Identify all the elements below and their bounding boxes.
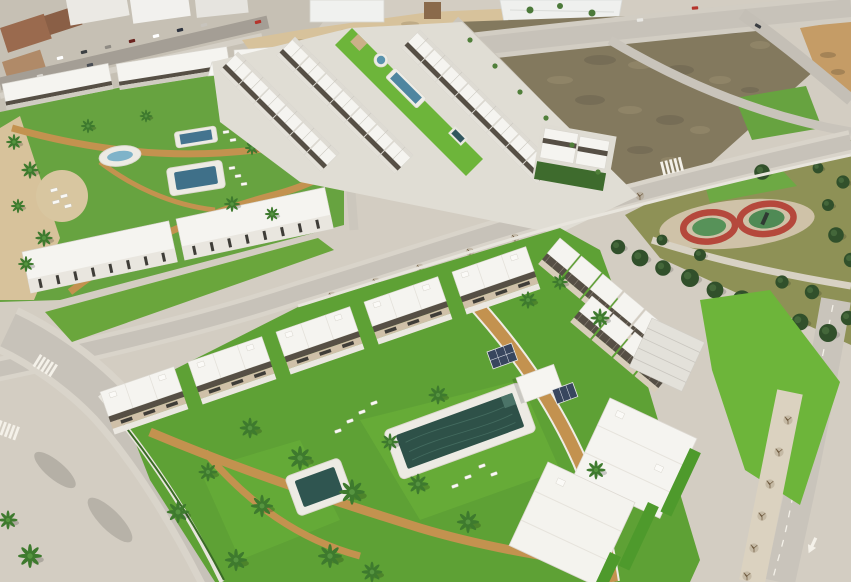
white-building <box>310 0 384 22</box>
round-fountain-pool <box>374 53 388 67</box>
street-sapling <box>569 142 574 147</box>
street-tree <box>589 10 596 17</box>
street-tree <box>527 7 534 14</box>
street-sapling <box>467 37 472 42</box>
sun-lounger <box>229 166 235 170</box>
aerial-render-canvas <box>0 0 851 582</box>
sun-lounger <box>223 130 229 134</box>
sidewalk-bare-tree <box>742 571 751 580</box>
street-tree <box>557 3 563 9</box>
street-sapling <box>517 89 522 94</box>
sidewalk-bare-tree <box>774 447 783 456</box>
sidewalk-bare-tree <box>757 511 766 520</box>
brown-tower <box>424 2 441 19</box>
sun-lounger <box>241 182 247 186</box>
aerial-render: Aerial 3D render of a new-build coastal … <box>0 0 851 582</box>
sidewalk-bare-tree <box>749 543 758 552</box>
sun-lounger <box>235 174 241 178</box>
sidewalk-bare-tree <box>765 479 774 488</box>
street-sapling <box>543 115 548 120</box>
street-sapling <box>595 169 600 174</box>
sidewalk-bare-tree <box>783 415 792 424</box>
white-van <box>637 18 644 22</box>
red-car-avenue <box>692 6 699 10</box>
sun-lounger <box>230 138 236 142</box>
street-sapling <box>492 63 497 68</box>
